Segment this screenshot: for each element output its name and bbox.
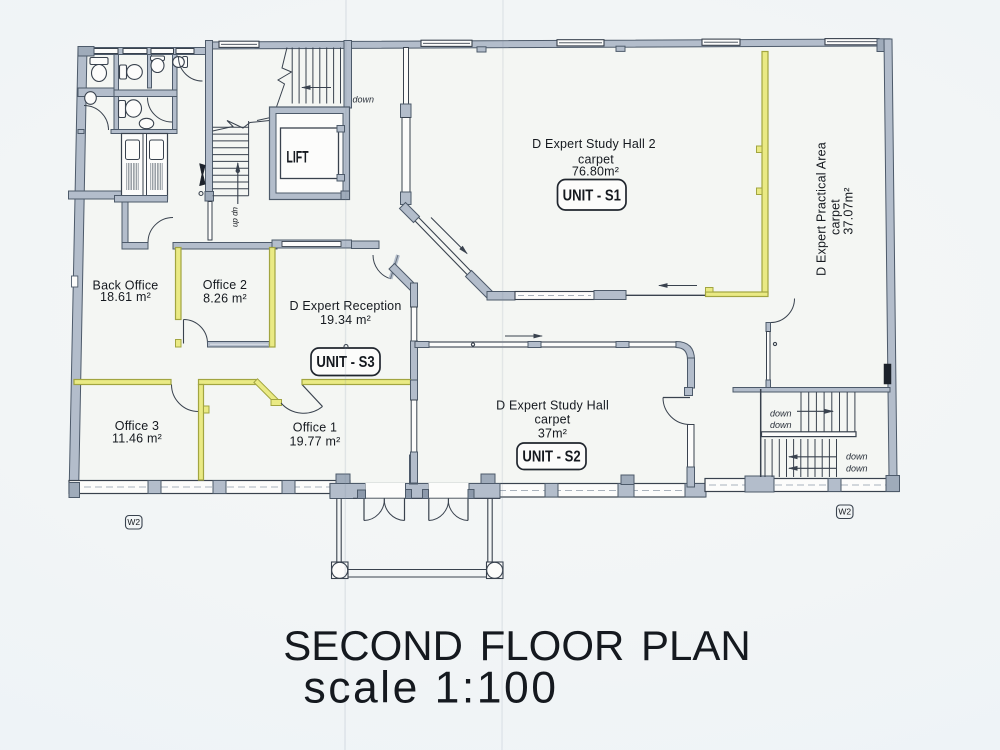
svg-text:up dn: up dn [231, 206, 240, 227]
svg-text:37m²: 37m² [538, 426, 567, 440]
svg-text:down: down [770, 420, 792, 430]
svg-text:UNIT - S1: UNIT - S1 [563, 187, 621, 204]
svg-text:SECOND FLOOR PLAN: SECOND FLOOR PLAN [283, 622, 750, 669]
svg-text:D Expert Practical Area: D Expert Practical Area [814, 142, 828, 276]
svg-text:carpet: carpet [828, 199, 842, 235]
svg-text:down: down [770, 409, 792, 419]
svg-text:Office 1: Office 1 [293, 420, 337, 434]
svg-text:carpet: carpet [535, 412, 571, 426]
svg-text:scale 1:100: scale 1:100 [303, 664, 558, 713]
svg-text:LIFT: LIFT [286, 147, 308, 166]
svg-text:down: down [353, 95, 375, 105]
svg-text:W2: W2 [127, 517, 140, 527]
svg-text:18.61 m²: 18.61 m² [100, 290, 151, 304]
svg-text:UNIT - S2: UNIT - S2 [522, 448, 580, 465]
svg-text:W2: W2 [838, 507, 851, 517]
svg-text:D Expert Study Hall: D Expert Study Hall [496, 398, 609, 412]
svg-text:19.77 m²: 19.77 m² [290, 434, 341, 448]
svg-text:11.46 m²: 11.46 m² [112, 432, 162, 446]
svg-text:8.26 m²: 8.26 m² [203, 291, 247, 305]
svg-text:Office 2: Office 2 [203, 278, 247, 292]
svg-text:76.80m²: 76.80m² [572, 164, 619, 178]
svg-text:D Expert Study Hall 2: D Expert Study Hall 2 [532, 137, 656, 151]
svg-text:37.07m²: 37.07m² [841, 187, 855, 234]
svg-text:down: down [846, 452, 868, 462]
svg-text:down: down [846, 464, 868, 474]
